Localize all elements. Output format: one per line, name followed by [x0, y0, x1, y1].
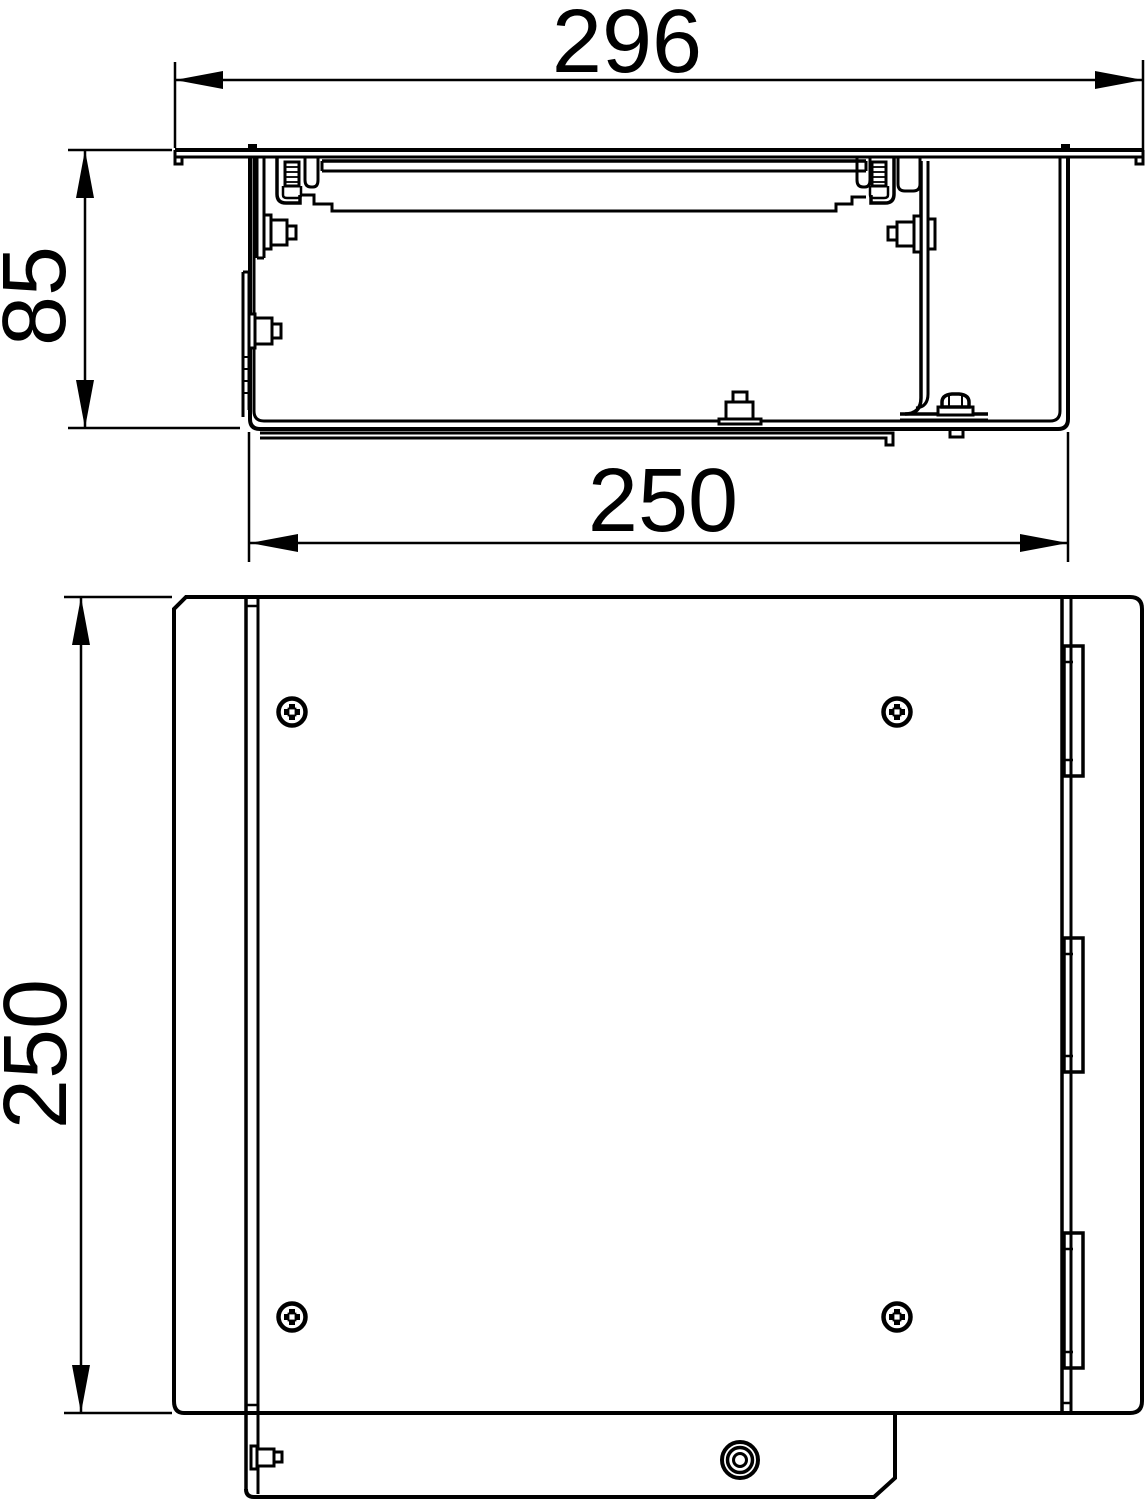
flange-plate-outline: [174, 597, 1142, 1413]
grommet-middle-ring: [728, 1448, 753, 1473]
bolt-nut: [928, 219, 935, 249]
dim-depth: 250: [0, 597, 172, 1413]
bolt-head: [255, 318, 272, 344]
dome-screw: [938, 394, 973, 415]
arrow-right-icon: [1020, 534, 1068, 552]
phillips-screw: [884, 699, 911, 726]
hex-bolt: [249, 314, 281, 348]
arrow-up-icon: [72, 597, 90, 645]
tab-outline: [1064, 938, 1083, 1072]
hex-bolt: [264, 215, 296, 249]
box-inner-profile: [254, 157, 1060, 421]
lid-pan-profile: [300, 195, 866, 211]
cover-plate: [300, 161, 866, 211]
dim-height: 85: [0, 150, 240, 428]
bolt-head: [271, 220, 287, 245]
flap-hex-bolt: [251, 1446, 282, 1469]
bolt-head: [897, 222, 914, 246]
phillips-screw: [279, 1304, 306, 1331]
left-bracket-lower: [243, 272, 281, 417]
cross-center: [894, 1314, 901, 1321]
grommet-hole: [734, 1454, 747, 1467]
bolt-tip: [888, 227, 897, 240]
arrow-down-icon: [72, 1365, 90, 1413]
bracket-hook: [898, 158, 920, 191]
bracket-hex-bolt: [888, 216, 935, 252]
bolt-tip: [274, 1452, 282, 1462]
dim-height-label: 85: [0, 246, 85, 346]
arrow-left-icon: [175, 71, 223, 89]
clip-arm: [305, 158, 318, 187]
flap-outline: [246, 1413, 895, 1497]
dim-overall-width: 296: [175, 0, 1143, 155]
technical-drawing: 296 85 250: [0, 0, 1145, 1500]
bottom-tab: [950, 429, 963, 437]
dim-body-width-label: 250: [588, 451, 738, 551]
dim-body-width: 250: [249, 432, 1068, 562]
arrow-down-icon: [76, 380, 94, 428]
dim-overall-width-label: 296: [552, 0, 702, 92]
box-outer-profile: [250, 157, 1068, 429]
base-plate-edge-left: [246, 597, 258, 1494]
drawing-sheet: 296 85 250: [0, 0, 1145, 1500]
section-view: 296 85 250: [0, 0, 1143, 562]
bolt-washer: [719, 419, 761, 424]
tab-outline: [1064, 646, 1083, 776]
arrow-left-icon: [250, 534, 298, 552]
phillips-screw: [884, 1304, 911, 1331]
flange-joint-tab: [248, 144, 257, 150]
bolt-head: [726, 402, 753, 419]
screw-dome: [942, 394, 969, 407]
dim-depth-label: 250: [0, 979, 86, 1129]
grommet: [722, 1442, 758, 1478]
underside-plate: [260, 433, 893, 445]
flange-joint-tab: [1061, 144, 1070, 150]
cross-center: [289, 709, 296, 716]
bolt-tip: [287, 226, 296, 239]
arrow-right-icon: [1095, 71, 1143, 89]
plan-view: 250: [0, 597, 1142, 1497]
front-flap: [246, 1413, 895, 1497]
cross-center: [289, 1314, 296, 1321]
cross-center: [894, 709, 901, 716]
right-bracket: [888, 161, 988, 420]
bolt-head: [257, 1449, 274, 1466]
bolt-tip: [272, 324, 281, 338]
tab-outline: [1064, 1233, 1083, 1368]
floor-hex-bolt: [719, 392, 761, 424]
bracket-outer-line: [905, 161, 921, 414]
phillips-screw: [279, 699, 306, 726]
arrow-up-icon: [76, 150, 94, 198]
